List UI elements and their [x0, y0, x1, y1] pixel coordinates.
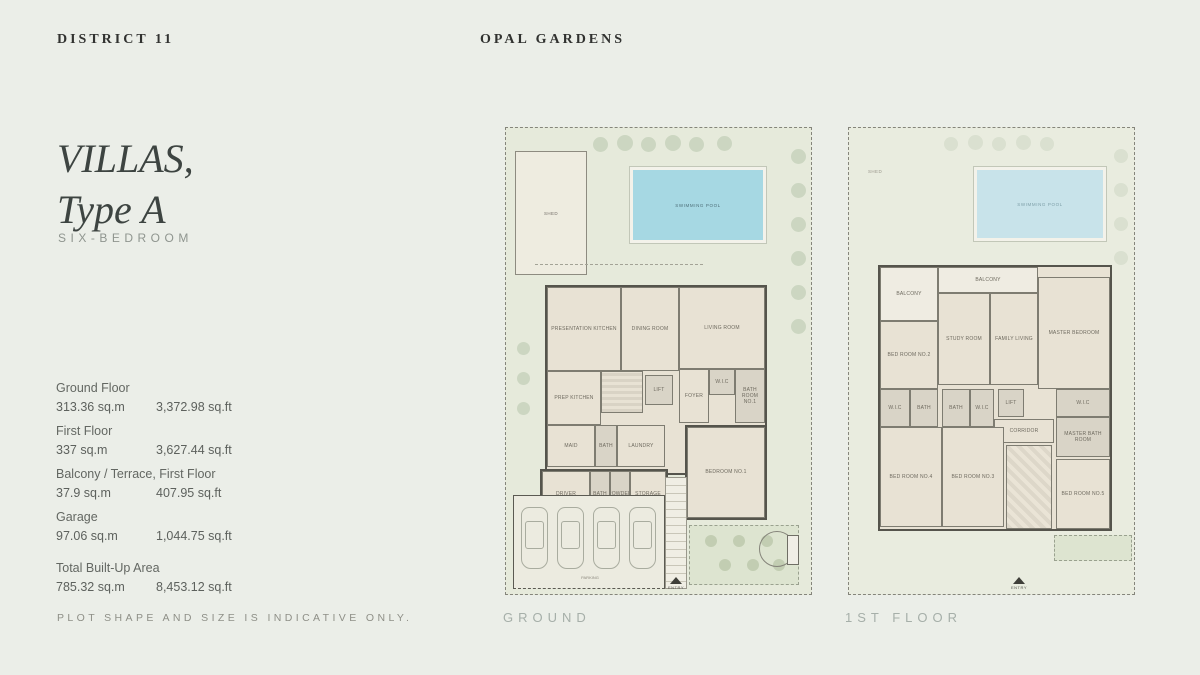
swimming-pool: SWIMMING POOL: [630, 167, 766, 243]
area-sqm: 37.9 sq.m: [56, 486, 156, 500]
tree-icon: [1114, 149, 1128, 163]
tree-icon: [968, 135, 983, 150]
area-sqft: 1,044.75 sq.ft: [156, 529, 232, 543]
room-bedroom-no2: BED ROOM NO.2: [880, 321, 938, 389]
entry-label: ENTRY: [668, 585, 684, 590]
area-row-ground: Ground Floor 313.36 sq.m3,372.98 sq.ft: [56, 381, 232, 414]
room-lift: LIFT: [998, 389, 1024, 417]
car-icon: [629, 507, 656, 569]
entry-arrow-icon: [1013, 577, 1025, 584]
room-laundry: LAUNDRY: [617, 425, 665, 467]
tree-icon: [791, 217, 806, 232]
room-maid: MAID: [547, 425, 595, 467]
area-sqft: 407.95 sq.ft: [156, 486, 221, 500]
room-bedroom-no1: BEDROOM NO.1: [687, 427, 765, 518]
entry-marker: ENTRY: [665, 577, 687, 590]
tree-icon: [1114, 183, 1128, 197]
tree-icon: [717, 136, 732, 151]
swimming-pool: SWIMMING POOL: [974, 167, 1106, 241]
area-label: Total Built-Up Area: [56, 561, 232, 575]
room-lift: LIFT: [645, 375, 673, 405]
car-icon: [557, 507, 584, 569]
ground-caption: GROUND: [503, 610, 591, 625]
area-row-total: Total Built-Up Area 785.32 sq.m8,453.12 …: [56, 561, 232, 594]
room-bath-left: BATH: [910, 389, 938, 427]
area-row-balcony: Balcony / Terrace, First Floor 37.9 sq.m…: [56, 467, 232, 500]
area-label: Ground Floor: [56, 381, 232, 395]
entry-walkway: [665, 477, 687, 589]
shrub-icon: [747, 559, 759, 571]
area-label: Garage: [56, 510, 232, 524]
shed-room: SHED: [515, 151, 587, 275]
room-wic-right: W.I.C: [1056, 389, 1110, 417]
room-bath-no1: BATH ROOM NO.1: [735, 369, 765, 423]
room-master-bedroom: MASTER BEDROOM: [1038, 277, 1110, 389]
ground-floor-plan: SHED SWIMMING POOL PRESENTATION KITCHEN …: [505, 127, 812, 595]
room-family-living: FAMILY LIVING: [990, 293, 1038, 385]
room-bath-center: BATH: [942, 389, 970, 427]
room-foyer: FOYER: [679, 369, 709, 423]
tree-icon: [791, 285, 806, 300]
area-sqm: 97.06 sq.m: [56, 529, 156, 543]
car-icon: [593, 507, 620, 569]
room-presentation-kitchen: PRESENTATION KITCHEN: [547, 287, 621, 371]
terrace-strip: [1054, 535, 1132, 561]
villa-title-line1: VILLAS,: [57, 133, 194, 184]
pool-deck-line: [535, 264, 703, 265]
project-header: OPAL GARDENS: [480, 32, 625, 48]
room-balcony-left: BALCONY: [880, 267, 938, 321]
tree-icon: [641, 137, 656, 152]
area-sqm: 313.36 sq.m: [56, 400, 156, 414]
first-floor-plan: SHED SWIMMING POOL BALCONY BALCONY BED R…: [848, 127, 1135, 595]
shrub-icon: [719, 559, 731, 571]
car-icon: [521, 507, 548, 569]
area-label: Balcony / Terrace, First Floor: [56, 467, 232, 481]
tree-icon: [791, 183, 806, 198]
room-bedroom-no4: BED ROOM NO.4: [880, 427, 942, 527]
staircase: [601, 371, 643, 413]
shrub-icon: [705, 535, 717, 547]
side-gate: [787, 535, 799, 565]
tree-icon: [1114, 251, 1128, 265]
area-sqm: 785.32 sq.m: [56, 580, 156, 594]
room-master-bath: MASTER BATH ROOM: [1056, 417, 1110, 457]
pool-label: SWIMMING POOL: [675, 203, 721, 208]
tree-icon: [944, 137, 958, 151]
tree-icon: [791, 149, 806, 164]
tree-icon: [992, 137, 1006, 151]
district-header: DISTRICT 11: [57, 32, 174, 48]
villa-title: VILLAS, Type A: [57, 133, 194, 235]
room-bedroom-no5: BED ROOM NO.5: [1056, 459, 1110, 529]
shed-ghost-label: SHED: [868, 169, 882, 174]
tree-icon: [1114, 217, 1128, 231]
garage-label: PARKING: [545, 575, 635, 580]
room-bedroom-no3: BED ROOM NO.3: [942, 427, 1004, 527]
area-sqm: 337 sq.m: [56, 443, 156, 457]
villa-title-line2: Type A: [57, 184, 194, 235]
tree-icon: [517, 372, 530, 385]
tree-icon: [593, 137, 608, 152]
tree-icon: [689, 137, 704, 152]
first-floor-caption: 1ST FLOOR: [845, 610, 962, 625]
area-row-garage: Garage 97.06 sq.m1,044.75 sq.ft: [56, 510, 232, 543]
room-prep-kitchen: PREP KITCHEN: [547, 371, 601, 425]
staircase: [1006, 445, 1052, 529]
tree-icon: [665, 135, 681, 151]
room-wic: W.I.C: [709, 369, 735, 395]
brochure-page: DISTRICT 11 OPAL GARDENS VILLAS, Type A …: [0, 0, 1200, 675]
tree-icon: [517, 342, 530, 355]
room-dining: DINING ROOM: [621, 287, 679, 371]
tree-icon: [517, 402, 530, 415]
room-wic-center: W.I.C: [970, 389, 994, 427]
area-sqft: 3,372.98 sq.ft: [156, 400, 232, 414]
room-study: STUDY ROOM: [938, 293, 990, 385]
villa-subtitle: SIX-BEDROOM: [58, 231, 193, 245]
area-label: First Floor: [56, 424, 232, 438]
plot-disclaimer: PLOT SHAPE AND SIZE IS INDICATIVE ONLY.: [57, 612, 412, 624]
area-table: Ground Floor 313.36 sq.m3,372.98 sq.ft F…: [56, 381, 232, 604]
entry-marker: ENTRY: [1008, 577, 1030, 590]
tree-icon: [791, 251, 806, 266]
entry-label: ENTRY: [1011, 585, 1027, 590]
room-bath: BATH: [595, 425, 617, 467]
pool-label: SWIMMING POOL: [1017, 202, 1063, 207]
area-sqft: 3,627.44 sq.ft: [156, 443, 232, 457]
room-balcony-mid: BALCONY: [938, 267, 1038, 293]
room-living: LIVING ROOM: [679, 287, 765, 369]
room-wic-left: W.I.C: [880, 389, 910, 427]
tree-icon: [791, 319, 806, 334]
area-sqft: 8,453.12 sq.ft: [156, 580, 232, 594]
entry-arrow-icon: [670, 577, 682, 584]
tree-icon: [617, 135, 633, 151]
area-row-first: First Floor 337 sq.m3,627.44 sq.ft: [56, 424, 232, 457]
shrub-icon: [733, 535, 745, 547]
tree-icon: [1016, 135, 1031, 150]
tree-icon: [1040, 137, 1054, 151]
